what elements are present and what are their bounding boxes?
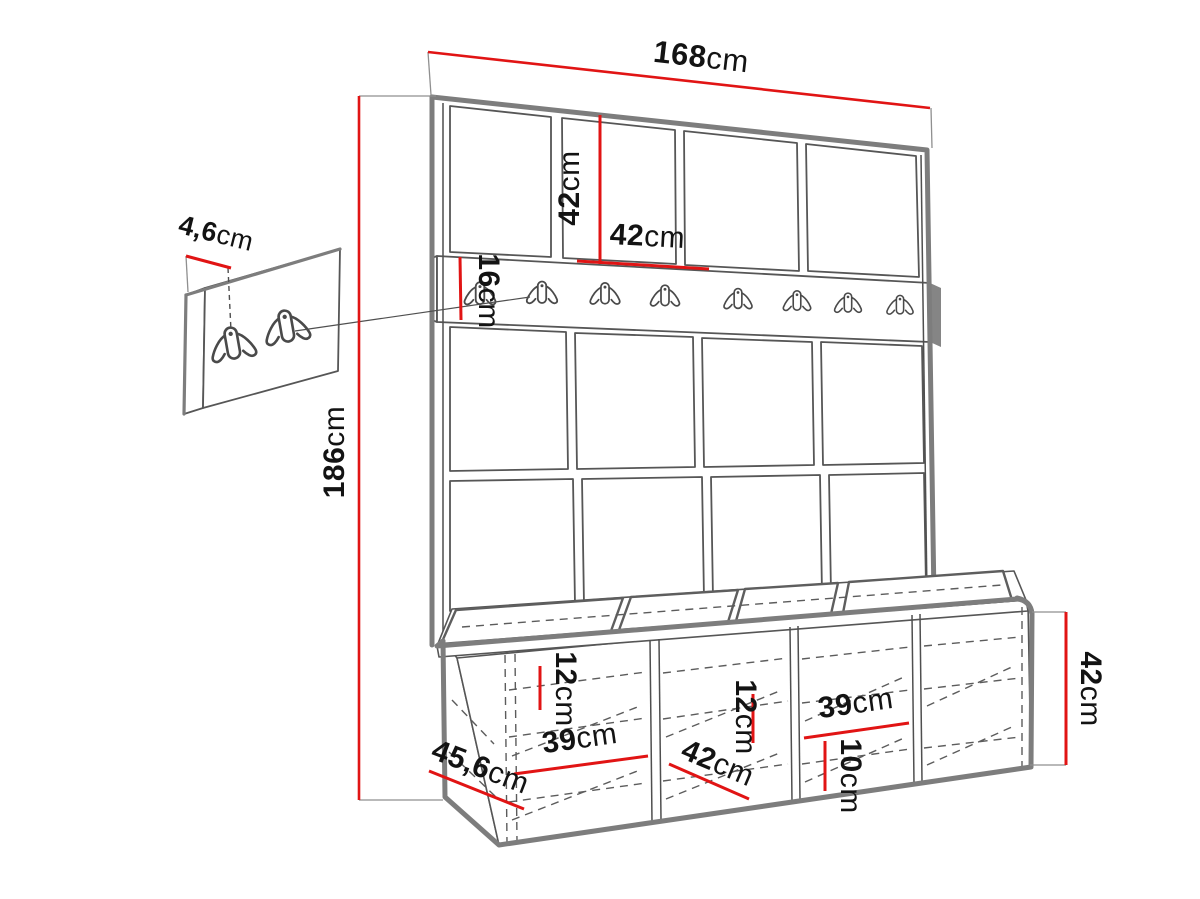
dim-square-width-label: 42cm — [609, 218, 686, 255]
panel-square-grid — [450, 106, 926, 611]
upholstered-panel-square — [829, 473, 926, 593]
dim-bench-height-label: 42cm — [1074, 651, 1107, 726]
wall-panel — [432, 97, 941, 645]
upholstered-panel-square — [702, 338, 814, 467]
dim-total-width-label: 168cm — [652, 34, 751, 80]
upholstered-panel-square — [806, 144, 919, 277]
dim-square-height-label: 42cm — [553, 150, 586, 225]
upholstered-panel-square — [575, 333, 695, 469]
dim-line-panel-thickness — [186, 256, 231, 268]
upholstered-panel-square — [450, 479, 575, 611]
upholstered-panel-square — [684, 131, 799, 271]
dim-shelf-left-label: 12cm — [549, 651, 582, 726]
upholstered-panel-square — [711, 475, 822, 599]
upholstered-panel-square — [821, 342, 924, 465]
dim-rail-height-label: 16cm — [472, 253, 505, 328]
small-panel-left-edge — [184, 295, 186, 414]
upholstered-panel-square — [450, 327, 568, 471]
dim-total-height-label: 186cm — [318, 406, 351, 499]
dim-panel-thickness-label: 4,6cm — [176, 210, 257, 258]
dim-line-rail-height — [460, 257, 461, 320]
dim-shelf-mid-label: 12cm — [729, 679, 762, 754]
upholstered-panel-square — [450, 106, 551, 257]
dim-shelf-right-label: 10cm — [834, 738, 867, 813]
diagram-canvas: 168cm 42cm 42cm 16cm 4,6cm 186cm 12cm 39… — [0, 0, 1200, 899]
upholstered-panel-square — [582, 477, 704, 605]
furniture-dimension-diagram: 168cm 42cm 42cm 16cm 4,6cm 186cm 12cm 39… — [0, 0, 1200, 899]
